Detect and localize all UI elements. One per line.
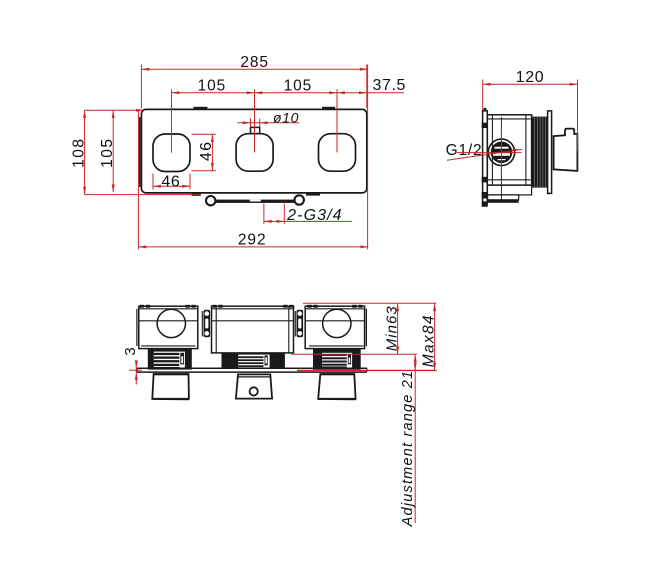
svg-text:285: 285 <box>240 54 269 71</box>
svg-text:37.5: 37.5 <box>373 77 407 94</box>
svg-text:120: 120 <box>516 69 545 86</box>
svg-text:46: 46 <box>161 173 180 190</box>
svg-text:105: 105 <box>99 138 116 168</box>
svg-text:Min63: Min63 <box>383 305 400 351</box>
svg-text:108: 108 <box>70 138 87 168</box>
svg-text:105: 105 <box>198 77 227 94</box>
svg-text:Max84: Max84 <box>420 314 437 367</box>
svg-text:46: 46 <box>198 141 215 161</box>
svg-text:105: 105 <box>284 77 313 94</box>
svg-text:Adjustment range 21: Adjustment range 21 <box>400 370 416 528</box>
svg-text:ø10: ø10 <box>273 109 299 125</box>
svg-text:3: 3 <box>122 347 139 356</box>
svg-text:292: 292 <box>238 231 267 248</box>
svg-text:2-G3/4: 2-G3/4 <box>286 207 343 224</box>
